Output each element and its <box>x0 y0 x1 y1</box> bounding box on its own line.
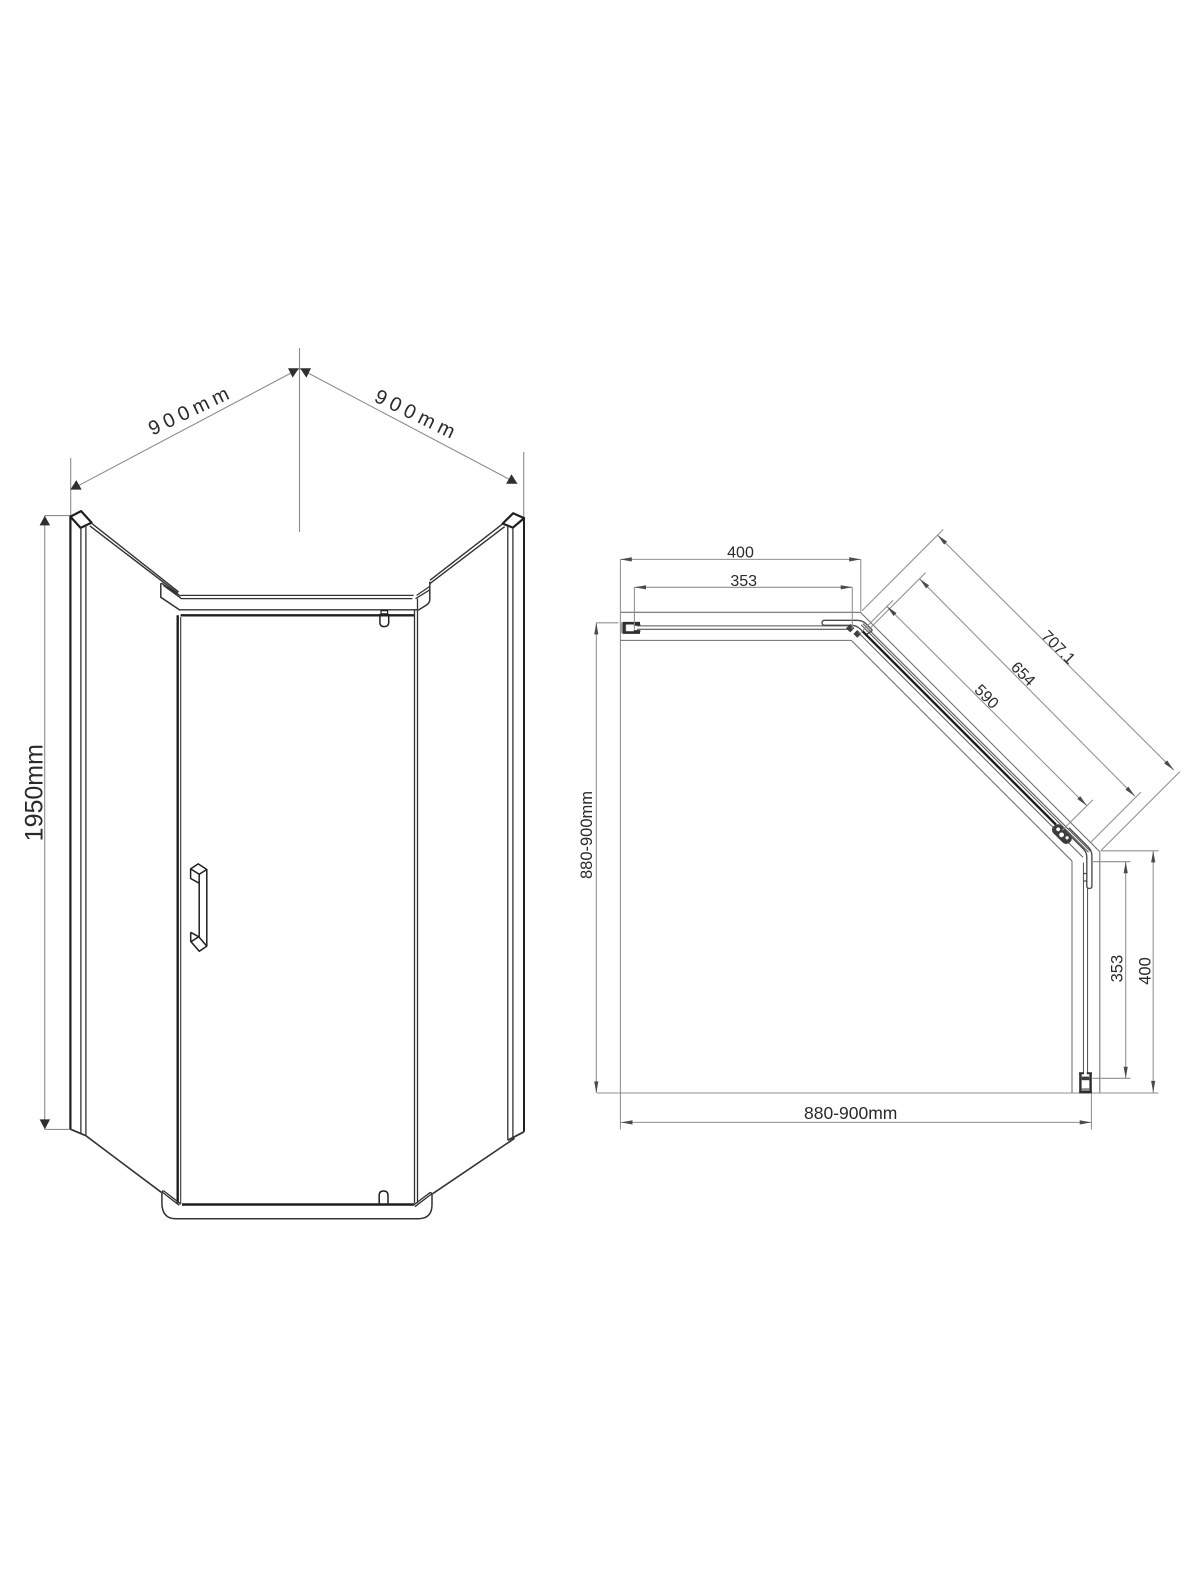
svg-text:400: 400 <box>727 545 754 562</box>
svg-text:353: 353 <box>1108 955 1126 983</box>
svg-text:880-900mm: 880-900mm <box>804 1103 897 1123</box>
svg-text:707.1: 707.1 <box>1038 628 1078 668</box>
svg-text:590: 590 <box>971 682 1002 713</box>
svg-text:880-900mm: 880-900mm <box>578 791 596 879</box>
svg-text:353: 353 <box>730 573 757 590</box>
svg-text:900mm: 900mm <box>145 381 237 440</box>
svg-text:654: 654 <box>1007 659 1038 690</box>
svg-text:1950mm: 1950mm <box>20 744 48 841</box>
svg-text:400: 400 <box>1137 957 1155 985</box>
svg-text:900mm: 900mm <box>371 386 463 446</box>
